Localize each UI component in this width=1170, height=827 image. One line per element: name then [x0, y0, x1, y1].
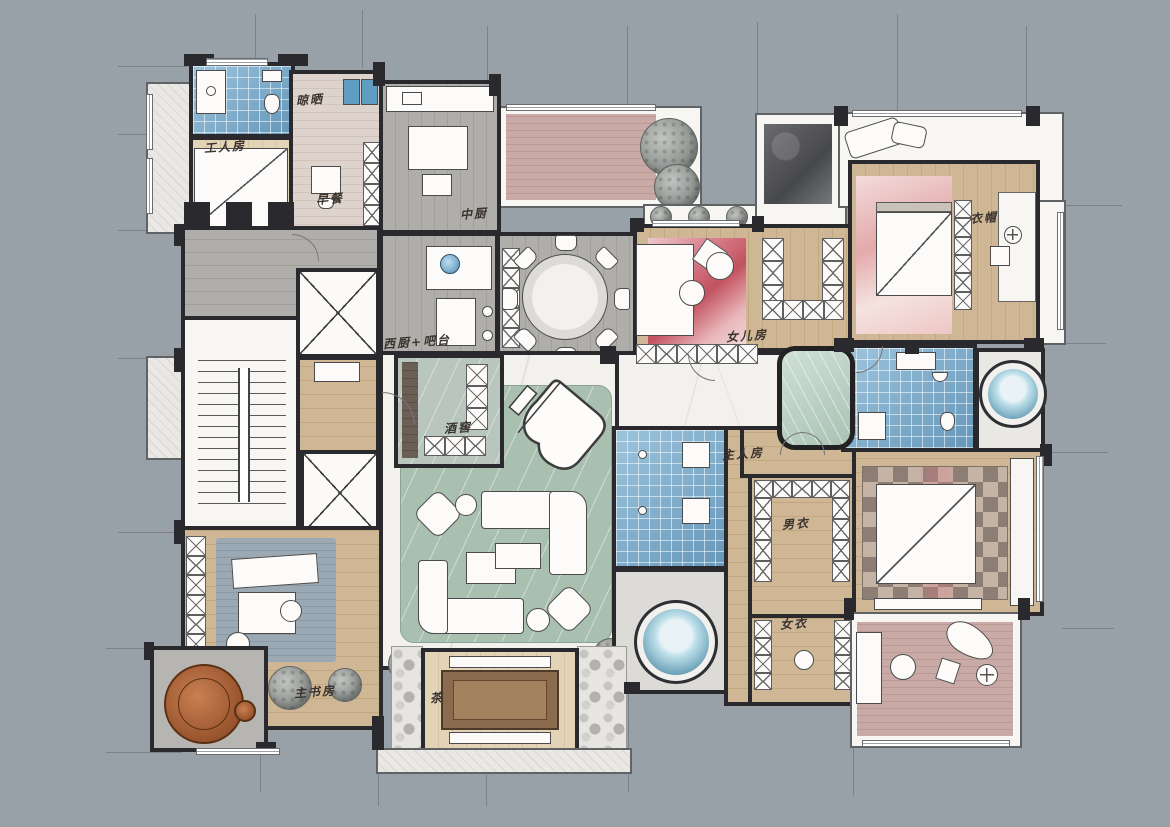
tea-bench — [449, 732, 551, 744]
cabinet-cell — [754, 480, 773, 498]
daughter-closet-bottom — [762, 300, 844, 320]
dim-line — [627, 26, 628, 108]
window — [146, 158, 153, 214]
cabinet-cell — [831, 480, 850, 498]
shower-tray — [858, 412, 886, 440]
shower-drain — [206, 86, 216, 96]
dim-line — [106, 752, 182, 753]
cabinet-cell — [822, 261, 844, 284]
wall-pillar — [278, 54, 308, 66]
cabinet-cell — [186, 556, 206, 576]
glass-feature — [777, 346, 855, 450]
window — [652, 220, 740, 227]
tea-table-top — [453, 680, 547, 720]
cabinet-cell — [186, 595, 206, 615]
walkway-bottom — [376, 748, 632, 774]
lobby-console — [314, 362, 360, 382]
cabinet-cell — [792, 480, 811, 498]
elevator-shaft — [300, 450, 380, 536]
kitchen-island — [408, 126, 468, 170]
dim-line — [362, 10, 363, 68]
bath-stall — [682, 498, 710, 524]
wall-pillar — [226, 202, 252, 230]
window — [206, 58, 268, 66]
master-bed — [876, 484, 976, 584]
wall-pillar — [144, 642, 154, 660]
cabinet-cell — [754, 519, 772, 540]
wall-pillar — [630, 218, 644, 232]
cellar-cabinets-bottom — [424, 436, 486, 456]
toilet — [940, 412, 955, 431]
elevator-shaft — [296, 268, 380, 358]
dresser — [990, 246, 1010, 266]
room-label-his-closet: 男衣 — [782, 517, 811, 531]
wall-pillar — [624, 682, 640, 694]
sofa-top-return — [549, 491, 587, 575]
cabinet-cell — [717, 344, 737, 364]
wall-pillar — [752, 216, 764, 232]
dim-line — [255, 14, 256, 60]
vanity — [896, 352, 936, 370]
wall-pillar — [1026, 106, 1040, 126]
round-tub — [979, 360, 1047, 428]
sink — [262, 70, 282, 82]
window — [862, 740, 1010, 747]
cabinet-cell — [783, 300, 804, 320]
stair-rail — [238, 368, 250, 502]
bar-stool — [482, 330, 493, 341]
room-label-cloakroom: 衣帽 — [970, 211, 999, 225]
bar-stool — [482, 306, 493, 317]
room-label-maid: 工人房 — [204, 140, 247, 155]
dining-chair — [502, 288, 518, 310]
round-soaking-tub — [634, 600, 718, 684]
dim-line — [118, 66, 188, 67]
room-label-laundry: 晾晒 — [296, 93, 325, 107]
closet-run — [832, 498, 850, 582]
shower-head — [638, 450, 647, 459]
cabinet-cell — [832, 519, 850, 540]
kitchen-cabinet — [422, 174, 452, 196]
cabinet-cell — [186, 536, 206, 556]
dim-line — [1062, 628, 1114, 629]
vanity-mirror — [1004, 226, 1022, 244]
wall-pillar — [834, 106, 848, 126]
dim-line — [487, 26, 488, 88]
dining-table — [522, 254, 608, 340]
window-seat — [1010, 458, 1034, 606]
cabinet-cell — [186, 575, 206, 595]
closet-run — [754, 498, 772, 582]
wall-pillar — [268, 202, 294, 230]
pouf — [706, 252, 734, 280]
room-label-her-closet: 女衣 — [780, 617, 809, 631]
cabinet-cell — [445, 436, 466, 456]
dining-chair — [614, 288, 630, 310]
window — [196, 748, 280, 755]
cabinet-cell — [803, 300, 824, 320]
wall-pillar — [174, 520, 184, 544]
cabinet-cell — [754, 638, 772, 656]
wall-pillar — [489, 74, 501, 96]
dim-line — [1064, 205, 1122, 206]
room-label-study: 主书房 — [294, 685, 337, 700]
bath-stall — [682, 442, 710, 468]
cabinet-cell — [754, 498, 772, 519]
cabinet-cell — [466, 364, 488, 386]
dim-line — [1026, 26, 1027, 114]
cabinet-cell — [824, 300, 845, 320]
closet-run — [754, 620, 772, 690]
coffee-table-2 — [495, 543, 541, 569]
headboard — [876, 202, 952, 212]
wall-pillar — [174, 348, 184, 372]
window — [146, 94, 153, 150]
wall-pillar — [174, 224, 184, 246]
wall-pillar — [373, 62, 385, 86]
cabinet-cell — [424, 436, 445, 456]
deck-pouf — [890, 654, 916, 680]
wall-pillar — [1018, 598, 1030, 620]
cabinet-cell — [656, 344, 676, 364]
cabinet-cell — [754, 620, 772, 638]
wall-pillar — [834, 338, 854, 352]
kitchen-sink — [402, 92, 422, 105]
room-label-daughter: 女儿房 — [726, 329, 769, 344]
cabinet-cell — [762, 300, 783, 320]
floor-plan-canvas: 晾晒 工人房 早餐 中厨 西厨+吧台 酒窖 女儿房 衣帽 主人房 男衣 女衣 主… — [0, 0, 1170, 827]
cabinet-cell — [738, 344, 758, 364]
wall-pillar — [184, 202, 210, 230]
tv-cabinet — [874, 598, 982, 610]
daughter-closet-left — [762, 238, 784, 308]
washer — [343, 79, 360, 105]
cabinet-cell — [754, 673, 772, 691]
dim-line — [853, 742, 854, 796]
cabinet-cell — [773, 480, 792, 498]
dining-chair — [555, 235, 577, 251]
cabinet-cell — [954, 255, 972, 273]
side-table — [526, 608, 550, 632]
toilet — [264, 94, 280, 114]
room-label-tea: 茶 — [430, 692, 445, 705]
cabinet-cell — [954, 292, 972, 310]
dim-line — [897, 14, 898, 114]
cabinet-cell — [186, 615, 206, 635]
side-table — [455, 494, 477, 516]
leather-ottoman — [234, 700, 256, 722]
window — [506, 104, 656, 111]
desk-chair — [280, 600, 302, 622]
room-label-wine-cellar: 酒窖 — [444, 421, 473, 435]
cabinet-cell — [754, 561, 772, 582]
dim-line — [118, 532, 182, 533]
tea-bench — [449, 656, 551, 668]
window — [852, 110, 1022, 117]
cabinet-cell — [832, 561, 850, 582]
stone-feature — [764, 124, 832, 204]
leather-chair-inner — [178, 678, 230, 730]
window — [1036, 456, 1044, 602]
deck-round-table — [976, 664, 998, 686]
dim-line — [757, 22, 758, 114]
bookshelf — [186, 536, 206, 654]
terrace-top-deck — [506, 114, 656, 200]
cabinet-cell — [954, 273, 972, 291]
deck-cabinet — [856, 632, 882, 704]
pebble-bed-left — [391, 646, 423, 752]
wall-pillar — [600, 346, 616, 364]
dim-line — [628, 688, 629, 792]
shower-head — [638, 506, 647, 515]
breakfast-table — [311, 166, 341, 194]
wall-pillar — [372, 716, 384, 750]
bed — [876, 212, 952, 296]
closet-run — [754, 480, 850, 498]
cabinet-cell — [502, 268, 520, 288]
bar-sink — [440, 254, 460, 274]
closet-stool — [794, 650, 814, 670]
dim-line — [1044, 452, 1108, 453]
desk — [231, 553, 319, 589]
cabinet-cell — [754, 540, 772, 561]
wall-pillar — [1024, 338, 1044, 352]
room-label-cn-kitchen: 中厨 — [460, 207, 489, 221]
cabinet-cell — [762, 261, 784, 284]
cabinet-cell — [636, 344, 656, 364]
window — [1057, 212, 1064, 330]
wall-pillar — [905, 340, 919, 354]
center-bathroom — [612, 426, 732, 570]
cabinet-cell — [502, 308, 520, 328]
cabinet-cell — [954, 237, 972, 255]
daughter-closet-right — [822, 238, 844, 308]
room-label-master: 主人房 — [722, 447, 765, 462]
wall-pillar — [844, 598, 854, 620]
room-label-breakfast: 早餐 — [316, 192, 345, 206]
cabinet-cell — [762, 238, 784, 261]
sofa-bottom-return — [418, 560, 448, 634]
cabinet-cell — [832, 498, 850, 519]
cabinet-cell — [822, 238, 844, 261]
cabinet-cell — [812, 480, 831, 498]
pouf — [679, 280, 705, 306]
cabinet-cell — [832, 540, 850, 561]
pebble-bed-right — [577, 646, 627, 750]
cabinet-cell — [754, 655, 772, 673]
cabinet-cell — [466, 386, 488, 408]
